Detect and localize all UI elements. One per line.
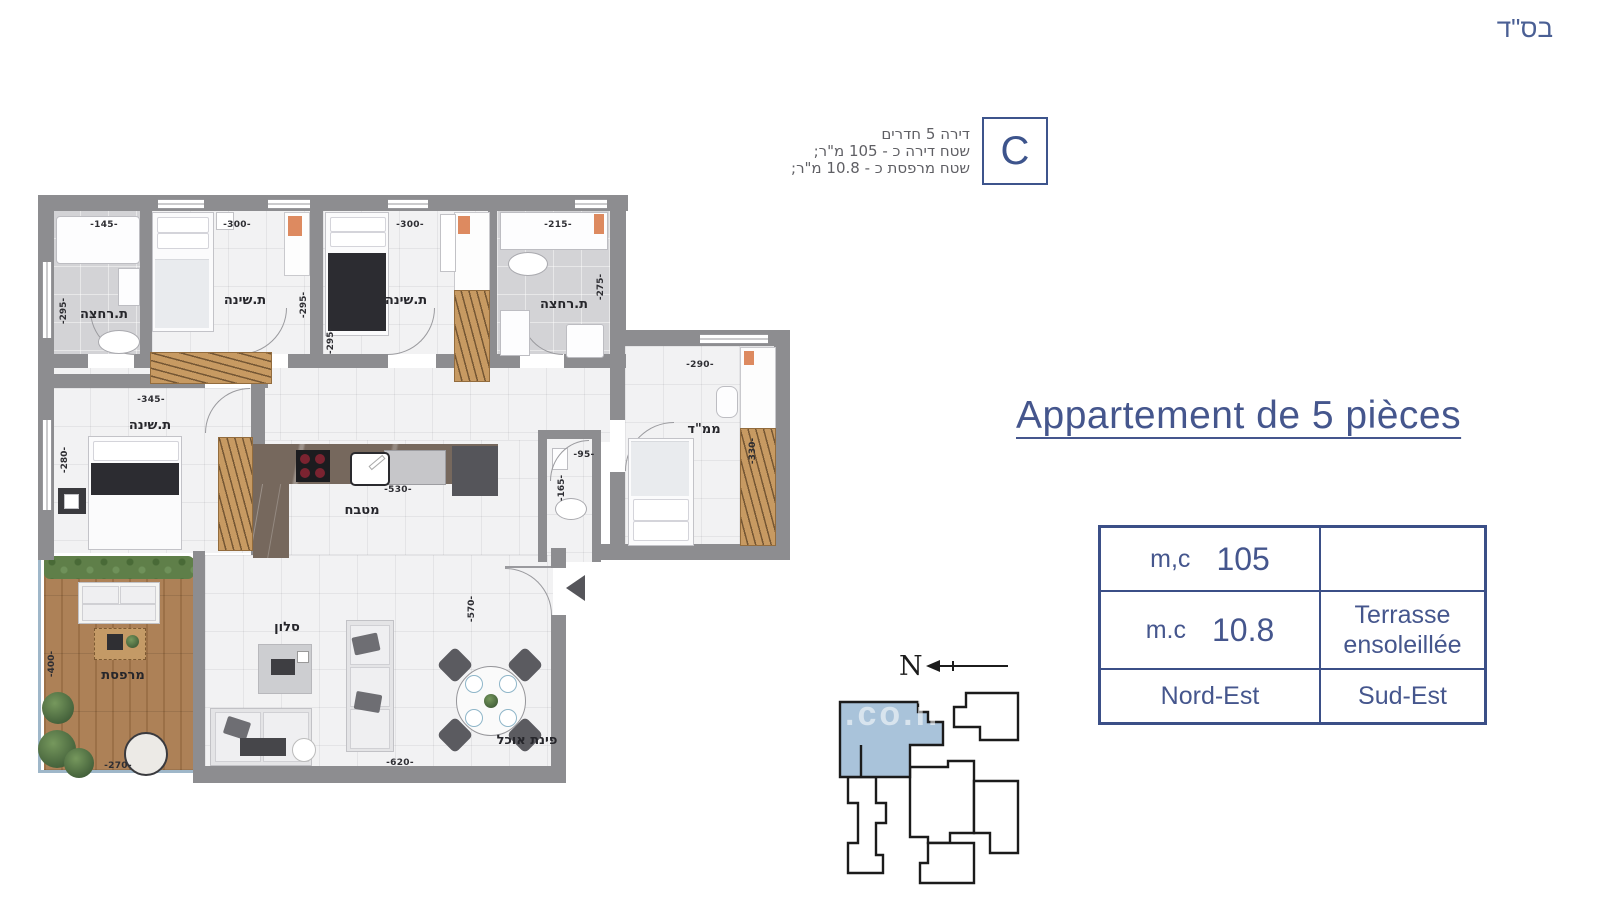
blanket: [155, 259, 209, 328]
bed3: [88, 436, 182, 550]
pillow: [633, 499, 689, 521]
spec-cell-terrace-desc: Terrasse ensoleillée: [1320, 591, 1485, 669]
bed2-wardrobe: [454, 290, 490, 382]
kitchen-label: מטבח: [344, 503, 379, 518]
area-label: m,c: [1150, 544, 1190, 574]
bed1-dim-top: -300-: [223, 220, 251, 230]
entry-door-leaf: [505, 566, 551, 568]
unit-letter-badge: C: [982, 117, 1048, 185]
wall-mamad-right: [774, 330, 790, 560]
window-left-1: [42, 262, 52, 338]
dining-label: פינת אוכל: [497, 733, 558, 748]
plate: [499, 709, 517, 727]
shower: [566, 324, 604, 358]
side-pouf: [292, 738, 316, 762]
window-top-3: [388, 199, 428, 209]
unit-letter: C: [1001, 129, 1030, 174]
wall-bottom: [193, 766, 566, 783]
terrace-plant-1: [42, 692, 74, 724]
coffee-table: [107, 634, 123, 650]
bath2-counter: [500, 212, 608, 250]
tv: [271, 659, 295, 675]
compass-arrowhead-icon: [926, 660, 940, 672]
unit-info-line-3: שטח מרפסת כ - 10.8 מ"ר;: [791, 160, 970, 177]
cushion: [120, 586, 156, 604]
keyplan-wing-right: [974, 781, 1018, 853]
pillow: [93, 441, 179, 461]
bath2-vanity: [500, 310, 530, 356]
living-dim-side: -570-: [467, 591, 477, 627]
sofa-vertical: [346, 620, 394, 752]
blanket: [328, 253, 386, 331]
bath2-label: ת.רחצה: [540, 297, 588, 312]
living-label: סלון: [274, 620, 300, 635]
burner: [315, 468, 325, 478]
unit-info: דירה 5 חדרים שטח דירה כ - 105 מ"ר; שטח מ…: [791, 126, 970, 177]
blanket: [91, 463, 179, 495]
window-top-4: [575, 199, 607, 209]
living-dim-bottom: -620-: [386, 758, 414, 768]
kitchen-sink: [350, 452, 390, 486]
pillow: [330, 232, 386, 247]
bed1: [152, 212, 214, 332]
spec-table: m,c 105 m.c 10.8 Terrasse ensoleillée No…: [1098, 525, 1487, 725]
mamad-door-gap: [610, 420, 625, 472]
pillow: [330, 217, 386, 232]
window-mamad: [700, 334, 768, 344]
area-value: 105: [1216, 544, 1269, 574]
wc-dim-top: -95-: [573, 450, 594, 460]
mamad-bed: [628, 438, 694, 546]
stove: [296, 450, 330, 482]
mamad-dim-top: -290-: [686, 360, 714, 370]
window-top-2: [268, 199, 310, 209]
bath1-door-gap: [88, 354, 134, 368]
wc-dim-side: -165-: [557, 470, 567, 506]
terrace-dim-bottom: -270-: [104, 761, 132, 771]
bed2-door-gap: [388, 354, 436, 368]
bed2: [325, 212, 389, 336]
bed3-dim-top: -345-: [137, 395, 165, 405]
wall-living-right-stub: [551, 548, 566, 568]
page: { "page": { "bsd": "בס\"ד", "watermark":…: [0, 0, 1600, 900]
compass-north-label: N: [899, 651, 923, 682]
bed3-label: ת.שינה: [129, 418, 171, 433]
terrace-dim-side: -400-: [47, 646, 57, 682]
terrace-label: מרפסת: [101, 668, 145, 683]
page-title: Appartement de 5 pièces: [1016, 394, 1526, 438]
bath1-toilet: [98, 330, 140, 354]
terrace-desc: Terrasse ensoleillée: [1343, 600, 1461, 660]
wall-wc-left: [538, 430, 547, 562]
bath1-label: ת.רחצה: [80, 307, 128, 322]
mamad-label: ממ"ד: [687, 422, 720, 437]
sink-drainer: [384, 450, 446, 485]
wall-bath1-bed1: [140, 209, 152, 355]
terrace-sofa: [78, 582, 160, 624]
dining-table: [456, 666, 526, 736]
wall-living-right: [551, 615, 566, 775]
keyplan-wing-bottom: [920, 843, 974, 883]
bath2-toilet: [508, 252, 548, 276]
wall-top: [38, 195, 628, 211]
mamad-sink: [716, 386, 738, 418]
bath2-dim-top: -215-: [544, 220, 572, 230]
pillow: [157, 217, 209, 233]
bed2-dim-top: -300-: [396, 220, 424, 230]
bath2-dim-side: -275-: [596, 269, 606, 305]
centerpiece: [484, 694, 498, 708]
cushion: [82, 586, 119, 604]
burner: [315, 454, 325, 464]
compass-tick: [952, 661, 954, 671]
wall-bed1-bed2: [310, 209, 323, 355]
entry-arrow-icon: [566, 575, 585, 601]
spec-cell-orientation-right: Sud-Est: [1320, 669, 1485, 723]
mamad-dim-side: -330-: [748, 433, 758, 469]
terrace-rug: [94, 628, 146, 660]
terrace-label: m.c: [1146, 615, 1186, 645]
kitchen-counter-return: [253, 484, 289, 558]
table-plant: [126, 635, 139, 648]
decor: [297, 651, 309, 663]
bed1-wardrobe: [150, 352, 272, 384]
keyplan-core: [910, 761, 974, 843]
compass-arrow-line: [938, 665, 1008, 667]
spec-cell-area: m,c 105: [1100, 527, 1320, 591]
floor-plan: ת.רחצה ת.שינה ת.שינה ת.רחצה ממ"ד ת.שינה …: [0, 0, 800, 900]
cushion: [82, 604, 156, 621]
terrace-hedge: [44, 556, 194, 579]
wall-right-upper: [610, 195, 626, 345]
unit-info-line-1: דירה 5 חדרים: [791, 126, 970, 143]
bed2-dim-side: -295-: [326, 323, 336, 359]
keyplan-watermark: .co.il: [845, 695, 940, 734]
pillow: [633, 521, 689, 541]
kitchen-tall-unit: [452, 446, 498, 496]
spec-cell-empty: [1320, 527, 1485, 591]
bed1-label: ת.שינה: [224, 293, 266, 308]
burner: [300, 454, 310, 464]
kitchen-dim: -530-: [384, 485, 412, 495]
bsd-text: בס"ד: [1497, 13, 1553, 44]
bed1-dim-side: -295-: [299, 287, 309, 323]
closet-accent: [744, 351, 754, 365]
wall-terrace-living: [193, 551, 205, 773]
wall-wc-top: [538, 430, 600, 439]
plate: [499, 675, 517, 693]
media-console: [240, 738, 286, 756]
bed2-desk: [440, 214, 456, 272]
bath1-sink: [118, 268, 140, 306]
keyplan-wing-top-right: [954, 693, 1018, 740]
bed2-label: ת.שינה: [385, 293, 427, 308]
faucet: [368, 455, 385, 470]
window-left-2: [42, 420, 52, 510]
blanket: [631, 441, 689, 496]
bath1-dim-side: -295-: [59, 293, 69, 329]
nightstand-cube: [64, 494, 79, 509]
bath2-door-gap: [520, 354, 564, 368]
spec-cell-orientation-left: Nord-Est: [1100, 669, 1320, 723]
living-rug: [258, 644, 312, 694]
closet-accent: [288, 216, 302, 236]
plate: [465, 675, 483, 693]
bath1-dim-top: -145-: [90, 220, 118, 230]
unit-info-line-2: שטח דירה כ - 105 מ"ר;: [791, 143, 970, 160]
closet-accent: [458, 216, 470, 234]
keyplan-wing-left: [848, 777, 886, 873]
pillow: [157, 233, 209, 249]
window-top-1: [158, 199, 204, 209]
plate: [465, 709, 483, 727]
bed3-wardrobe: [218, 437, 253, 551]
mamad-wardrobe: [740, 428, 776, 546]
terrace-plant-3: [64, 748, 94, 778]
burner: [300, 468, 310, 478]
wall-mamad-bottom: [598, 544, 790, 560]
bed3-dim-side: -280-: [60, 442, 70, 478]
counter-accent: [594, 214, 604, 234]
spec-cell-terrace: m.c 10.8: [1100, 591, 1320, 669]
cushion: [350, 709, 390, 749]
terrace-value: 10.8: [1212, 615, 1274, 645]
